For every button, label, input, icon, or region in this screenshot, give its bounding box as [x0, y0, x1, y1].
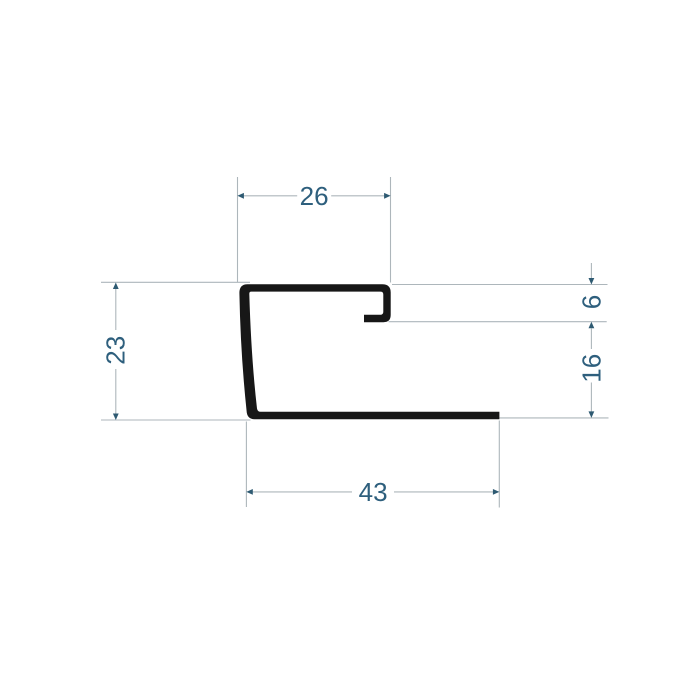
svg-text:26: 26 — [300, 181, 329, 211]
svg-text:23: 23 — [100, 336, 130, 365]
svg-text:16: 16 — [576, 354, 606, 383]
svg-text:6: 6 — [576, 295, 606, 309]
svg-text:43: 43 — [359, 477, 388, 507]
